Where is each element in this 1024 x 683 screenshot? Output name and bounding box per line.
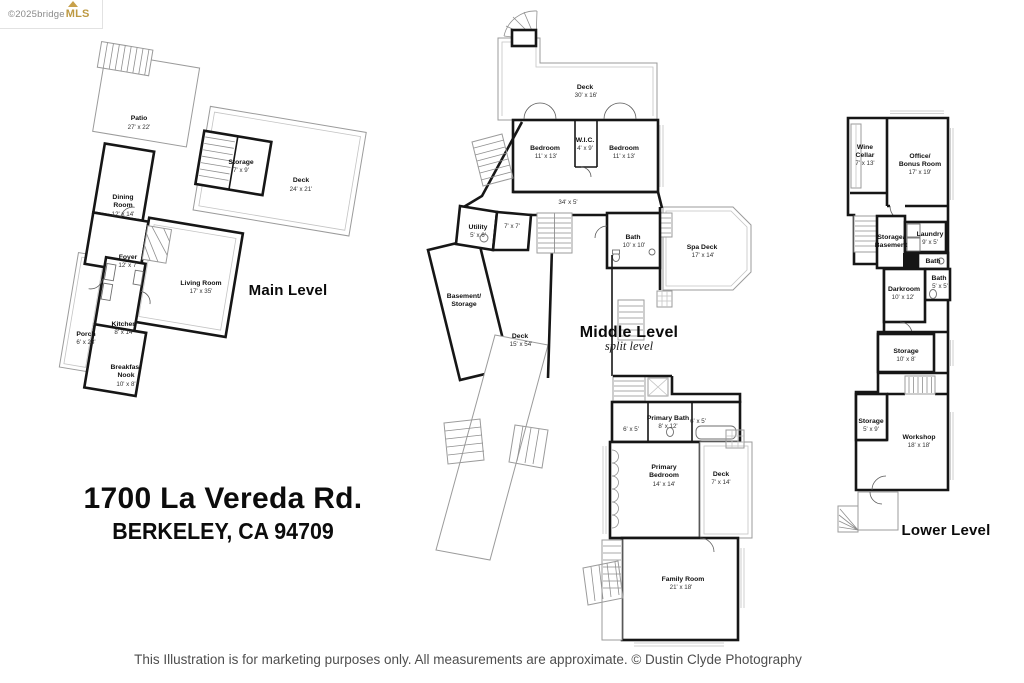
toilet-icon <box>930 290 937 299</box>
room-label-bedroom1: Bedroom <box>530 145 560 152</box>
mid-connector-stairs <box>612 255 644 376</box>
lower-level-title: Lower Level <box>902 522 991 539</box>
room-dims-bath2: 5' x 5' <box>932 283 948 290</box>
roof-icon <box>68 1 78 7</box>
room-dims-deck7: 7' x 14' <box>711 479 730 486</box>
room-label-bath2: Bath <box>931 275 946 282</box>
tub-icon <box>696 426 736 439</box>
room-label-bedroom2: Bedroom <box>609 145 639 152</box>
room-label-foyer: Foyer <box>119 254 138 261</box>
floorplan-canvas: Patio 27' x 22' Storage 7' x 9' Deck 24'… <box>0 0 1024 683</box>
room-dims-porch: 6' x 23' <box>76 339 95 346</box>
chimney-outline <box>512 30 536 46</box>
entry-vestibule <box>858 492 898 530</box>
room-label-wic: W.I.C. <box>576 137 595 144</box>
room-dims-closet1: 6' x 5' <box>623 426 639 433</box>
room-label-deck7: Deck <box>713 471 729 478</box>
watermark-mls: MLS <box>66 8 90 20</box>
dryer-icon <box>907 238 920 251</box>
room-dims-wic: 4' x 9' <box>577 145 593 152</box>
room-label-patio: Patio <box>131 115 148 122</box>
room-dims-bath: 10' x 10' <box>623 242 646 249</box>
watermark-copyright: ©2025 <box>8 9 37 20</box>
room-dims-bedroom1: 11' x 13' <box>535 153 557 160</box>
room-label-storagebasement: Storage/ <box>877 234 904 241</box>
disclaimer-text: This Illustration is for marketing purpo… <box>134 652 802 667</box>
room-label-primarybedroom-2: Bedroom <box>649 472 679 479</box>
room-label-darkroom: Darkroom <box>888 286 920 293</box>
room-dims-darkroom: 10' x 12' <box>892 294 915 301</box>
room-label-dining-2: Room <box>113 202 132 209</box>
room7-outline <box>493 212 531 250</box>
floorplan-page: Patio 27' x 22' Storage 7' x 9' Deck 24'… <box>0 0 1024 683</box>
chimney-icon <box>903 253 918 269</box>
property-address: 1700 La Vereda Rd. BERKELEY, CA 94709 <box>58 482 388 545</box>
room-label-kitchen: Kitchen <box>112 321 137 328</box>
room-dims-storage10: 10' x 8' <box>896 356 915 363</box>
room-label-dining: Dining <box>112 194 133 201</box>
room-label-spadeck: Spa Deck <box>687 244 718 251</box>
address-line2: BERKELEY, CA 94709 <box>70 518 377 545</box>
room-label-deck: Deck <box>293 177 309 184</box>
room-label-bath1: Bath <box>925 258 940 265</box>
room-label-storage: Storage <box>228 159 254 166</box>
room-dims-spadeck: 17' x 14' <box>692 252 715 259</box>
room-dims-living: 17' x 35' <box>190 288 213 295</box>
lower-stairs-upper <box>854 216 877 252</box>
room-dims-room7: 7' x 7' <box>504 223 520 230</box>
middle-level-subtitle: split level <box>605 339 654 353</box>
room-label-porch: Porch <box>76 331 95 338</box>
center-stairs <box>537 213 572 253</box>
room-label-basement: Basement/ <box>447 293 481 300</box>
room-dims-bedroom2: 11' x 13' <box>613 153 635 160</box>
sink-icon <box>649 249 655 255</box>
family-side-stairs <box>602 540 622 640</box>
room-dims-primarybath: 8' x 12' <box>658 423 677 430</box>
room-dims-foyer: 12' x 7' <box>118 262 137 269</box>
bridgemls-watermark: ©2025 bridge MLS <box>0 0 103 29</box>
room-label-storagebasement-2: Basement <box>875 242 908 249</box>
room-dims-breakfast: 10' x 8' <box>116 381 135 388</box>
lower-stairwell <box>905 376 935 394</box>
fireplace-icon <box>142 226 171 263</box>
room-dims-kitchen: 8' x 14' <box>114 329 133 336</box>
room-dims-closet2: 6' x 5' <box>690 418 706 425</box>
room-label-basement-2: Storage <box>451 301 477 308</box>
room-dims-dining: 12' x 14' <box>112 211 135 218</box>
room-label-breakfast: Breakfast <box>111 364 143 371</box>
skylight-xbox-icon <box>648 378 668 396</box>
room-dims-patio: 27' x 22' <box>128 124 151 131</box>
room-dims-workshop: 18' x 18' <box>908 442 931 449</box>
room-label-storage5: Storage <box>858 418 884 425</box>
lower-level-geometry <box>838 111 953 532</box>
room-label-deck30: Deck <box>577 84 593 91</box>
main-level-geometry <box>45 42 374 427</box>
room-dims-deck: 24' x 21' <box>290 186 313 193</box>
room-label-primarybath: Primary Bath <box>647 415 689 422</box>
storage-5x9-outline <box>856 394 887 440</box>
room-dims-utility: 5' x 6' <box>470 232 486 239</box>
watermark-brand: bridge <box>37 9 65 20</box>
room-label-office-2: Bonus Room <box>899 161 941 168</box>
room-dims-deck30: 30' x 16' <box>575 92 598 99</box>
room-label-breakfast-2: Nook <box>118 372 135 379</box>
room-label-office: Office/ <box>909 153 930 160</box>
room-label-family: Family Room <box>662 576 705 583</box>
room-dims-primarybedroom: 14' x 14' <box>653 481 676 488</box>
main-level-plan: Patio 27' x 22' Storage 7' x 9' Deck 24'… <box>45 42 374 427</box>
room-dims-deck54: 15' x 54' <box>510 341 533 348</box>
spa-grid-box <box>657 291 672 307</box>
room-dims-office: 17' x 19' <box>909 169 932 176</box>
address-line1: 1700 La Vereda Rd. <box>58 482 388 516</box>
room-label-wine-2: Cellar <box>856 152 875 159</box>
room-label-deck54: Deck <box>512 333 528 340</box>
room-dims-laundry: 9' x 5' <box>922 239 938 246</box>
main-level-title: Main Level <box>249 282 328 299</box>
room-label-storage10: Storage <box>893 348 919 355</box>
primary-bedroom <box>603 442 700 538</box>
room-label-bath: Bath <box>625 234 640 241</box>
primary-bath-row <box>612 402 740 442</box>
room-dims-hall: 34' x 5' <box>558 199 577 206</box>
lower-level-plan: Wine Cellar 7' x 13' Office/ Bonus Room … <box>838 111 990 539</box>
middle-deck-outline <box>498 38 657 120</box>
room-label-wine: Wine <box>857 144 873 151</box>
room-dims-storage5: 5' x 9' <box>863 426 879 433</box>
family-room <box>622 538 744 646</box>
main-dining-outline <box>93 143 154 220</box>
room-label-primarybedroom: Primary <box>651 464 677 471</box>
room-dims-storage: 7' x 9' <box>233 167 249 174</box>
room-label-laundry: Laundry <box>917 231 944 238</box>
room-label-living: Living Room <box>180 280 221 287</box>
room-label-utility: Utility <box>469 224 488 231</box>
room-dims-wine: 7' x 13' <box>855 160 874 167</box>
corner-stairs-icon <box>838 506 858 532</box>
room-dims-family: 21' x 18' <box>670 584 693 591</box>
room-label-workshop: Workshop <box>902 434 935 441</box>
middle-level-plan: Deck 30' x 16' Bedroom 11' x 13' W.I.C. … <box>428 11 752 646</box>
